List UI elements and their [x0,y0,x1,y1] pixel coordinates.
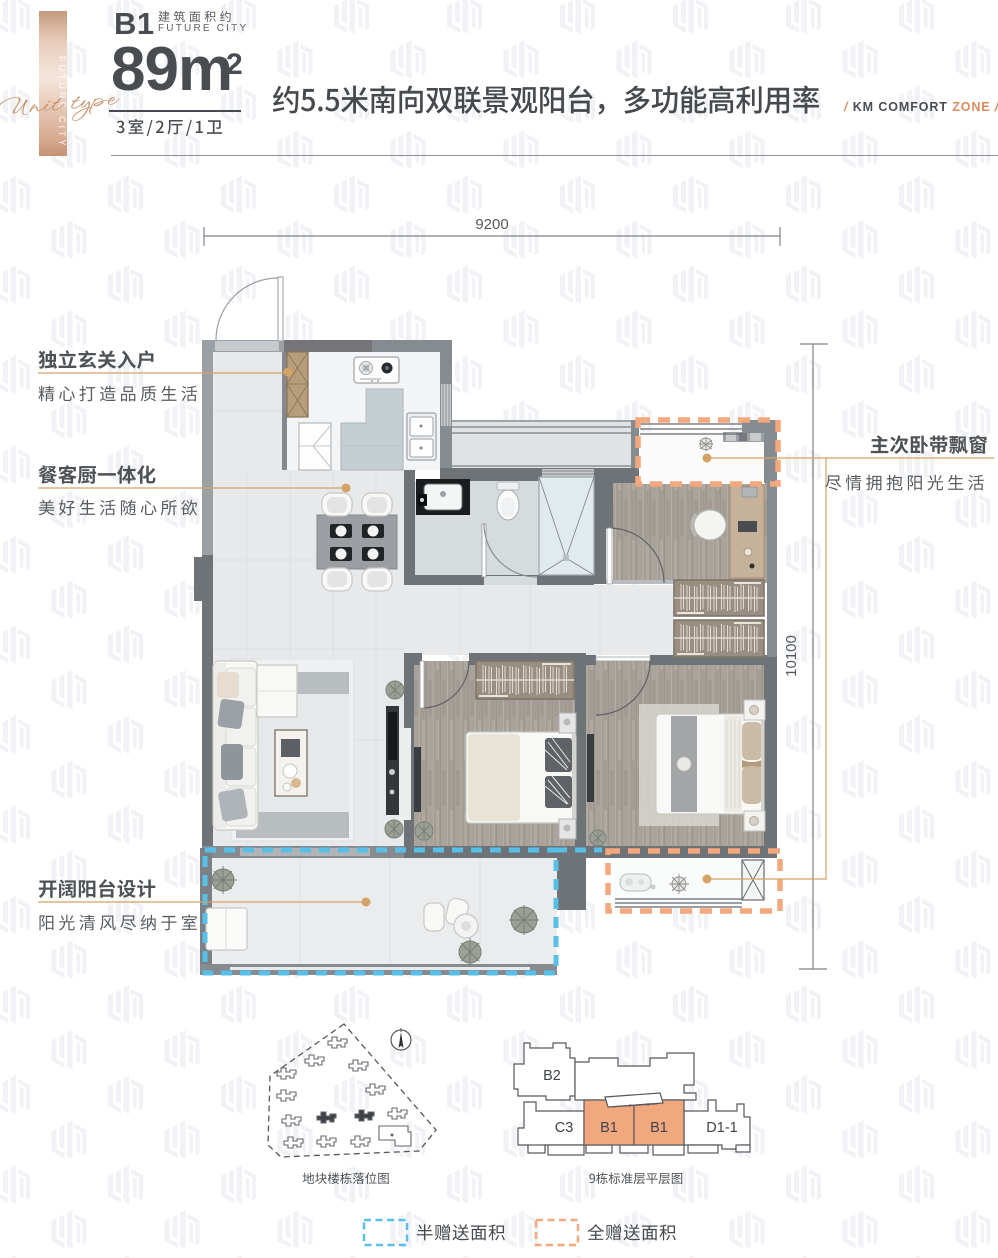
svg-text:B2: B2 [543,1068,561,1084]
svg-text:C3: C3 [555,1120,574,1136]
svg-text:D1-1: D1-1 [706,1120,737,1136]
svg-text:9200: 9200 [475,216,508,233]
svg-text:B1: B1 [650,1120,668,1136]
svg-text:10100: 10100 [783,635,800,677]
svg-text:B1: B1 [600,1120,618,1136]
